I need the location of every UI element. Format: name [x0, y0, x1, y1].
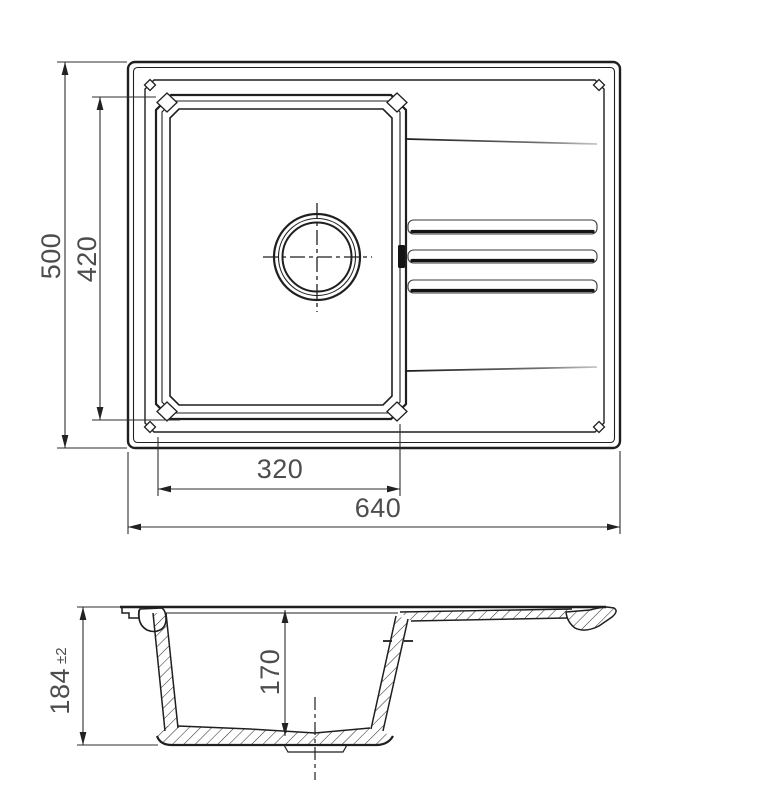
drainboard-bottom-edge-line — [406, 367, 597, 371]
groove-band-2 — [408, 250, 597, 263]
side-left-wall — [153, 613, 178, 731]
side-bottom-wall — [157, 726, 393, 752]
dim-label-500: 500 — [36, 233, 66, 280]
bowl-outline — [156, 95, 406, 419]
top-view: 500 420 320 640 — [36, 62, 620, 534]
dim-label-184: 184±2 — [45, 647, 75, 714]
groove-bowl-junction — [398, 245, 405, 268]
dim-bowl-width: 320 — [158, 424, 400, 496]
dim-bowl-depth: 420 — [72, 97, 180, 420]
side-view: 184±2 170 — [45, 607, 616, 780]
dim-label-640: 640 — [355, 493, 402, 523]
drain-outline — [263, 203, 372, 312]
dim-label-420: 420 — [72, 236, 102, 283]
drain-centerlines — [263, 203, 372, 312]
side-right-wall — [371, 616, 408, 731]
technical-drawing-page: 500 420 320 640 — [0, 0, 764, 800]
groove-band-3 — [408, 280, 597, 293]
dim-label-320: 320 — [257, 454, 304, 484]
dim-overall-width: 640 — [128, 451, 620, 534]
drainboard-grooves — [398, 139, 597, 371]
dim-label-170: 170 — [255, 649, 285, 696]
side-right-edge-profile — [566, 607, 616, 630]
dim-height: 184±2 — [45, 607, 158, 745]
groove-band-1 — [408, 220, 597, 234]
sink-drawing-svg: 500 420 320 640 — [0, 0, 764, 800]
drainboard-top-edge-line — [406, 139, 597, 144]
dim-bowl-inner-depth: 170 — [255, 610, 288, 736]
side-drainboard — [400, 607, 616, 630]
